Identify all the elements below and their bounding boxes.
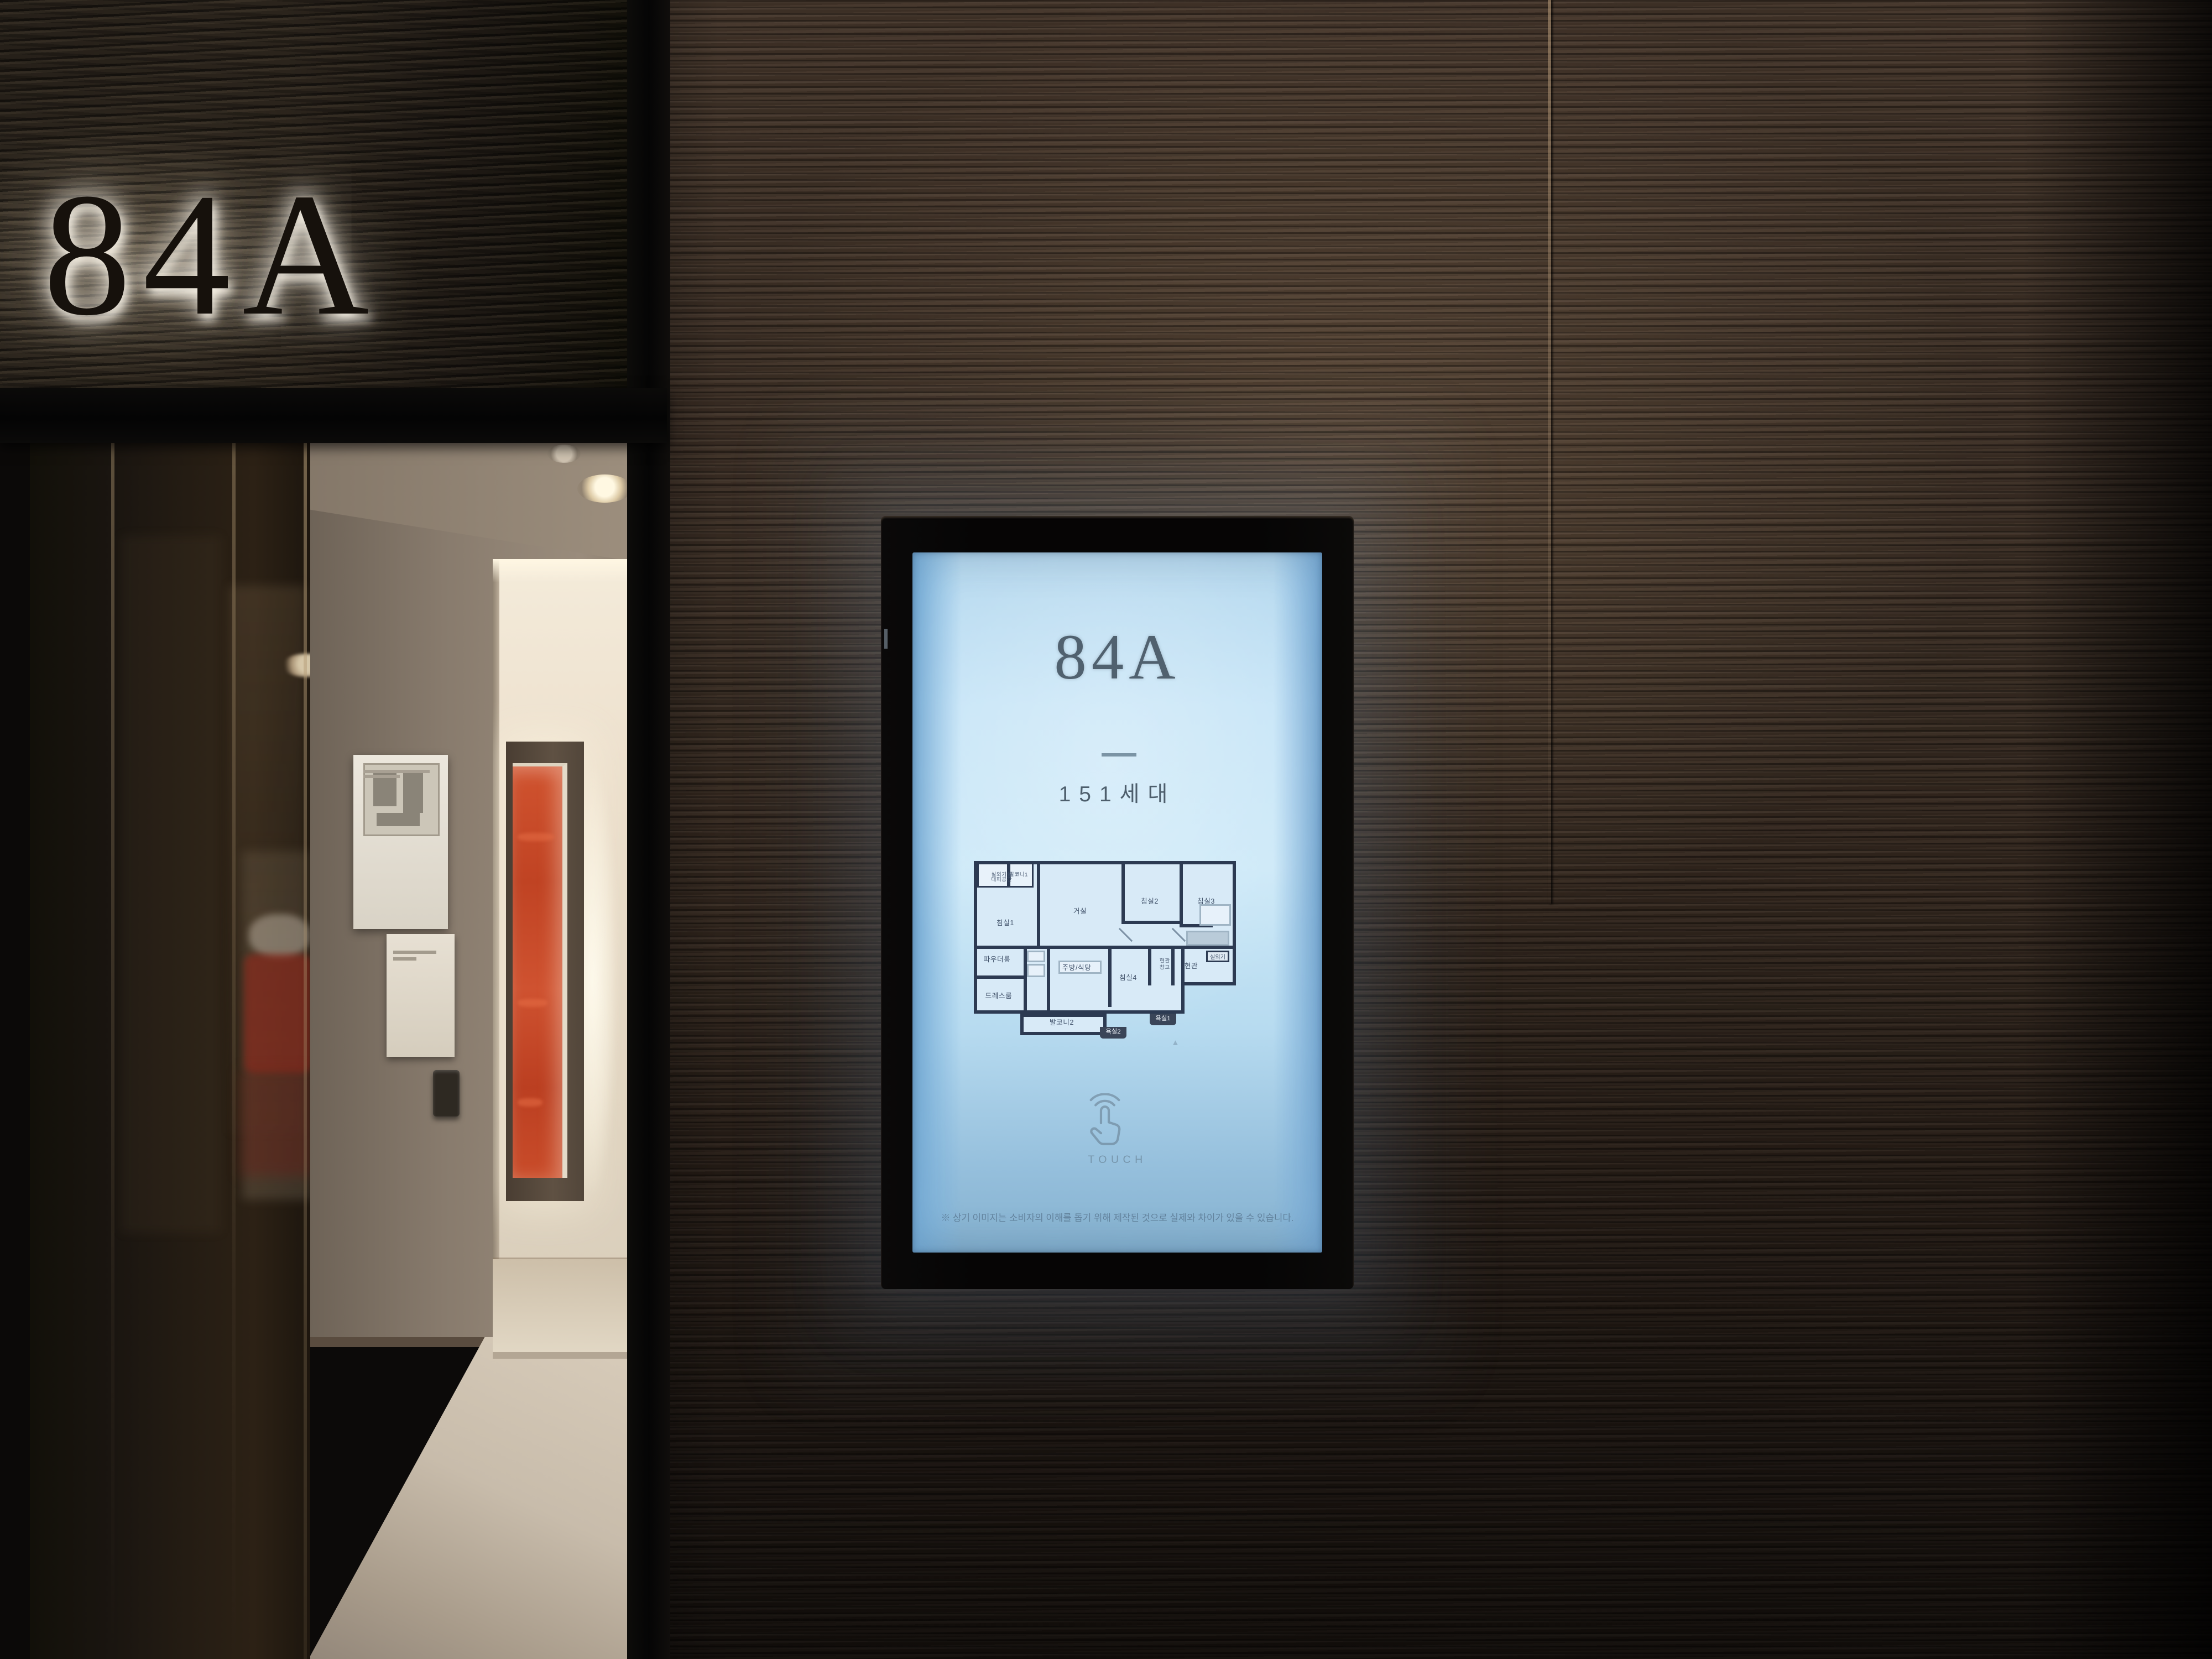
room-label: 침실3 xyxy=(1197,899,1215,906)
doorway-header-beam xyxy=(0,388,667,443)
room-label: 침실1 xyxy=(997,920,1014,928)
mirror-reflected-red-bed xyxy=(244,954,310,1073)
room-label: 드레스룸 xyxy=(985,993,1013,1001)
floor-plan[interactable]: 실외기실 대피공간 발코니1 침실1 거실 침실2 침실3 파우더룸 드레스룸 … xyxy=(974,858,1239,1040)
mirror-panel-seam xyxy=(111,441,114,1659)
inner-room-opening xyxy=(493,559,629,1355)
info-sheet-small xyxy=(387,934,455,1057)
wall-panel-right xyxy=(624,0,2212,1659)
bath2-tag: 욕실2 xyxy=(1100,1027,1126,1039)
mirror-reflected-red-bed xyxy=(241,1070,310,1176)
info-sheet-floorplan-thumbnail xyxy=(363,763,440,836)
household-count: 151세대 xyxy=(912,776,1322,808)
bath1-tag: 욕실1 xyxy=(1150,1014,1176,1025)
mirror-panel-seam xyxy=(232,441,236,1659)
inner-room-floor xyxy=(493,1259,629,1355)
disclaimer-text: ※ 상기 이미지는 소비자의 이해를 돕기 위해 제작된 것으로 실제와 차이가… xyxy=(932,1214,1302,1225)
outdoor-unit-tag: 실외기 xyxy=(1206,951,1229,962)
doorway-opening xyxy=(0,441,629,1659)
mirror-reflection xyxy=(121,536,221,1233)
wall-panel-seam xyxy=(1548,0,1551,904)
unit-sign: 84A xyxy=(43,139,425,372)
light-switch[interactable] xyxy=(433,1070,460,1117)
mirror-panel-seam xyxy=(304,441,307,1659)
digital-signage-kiosk: 84A 151세대 xyxy=(881,516,1354,1289)
mirrored-wardrobe xyxy=(30,441,310,1659)
entry-header-wall: 84A xyxy=(0,0,634,388)
unit-type-title: 84A xyxy=(912,625,1322,690)
divider-line xyxy=(1101,753,1136,757)
artwork-panel xyxy=(506,742,584,1201)
artwork-orange-canvas xyxy=(513,763,567,1178)
touch-hand-icon[interactable] xyxy=(1080,1093,1130,1150)
smoke-detector xyxy=(547,445,581,463)
room-label: 침실4 xyxy=(1119,975,1137,983)
north-arrow-icon: ▲ xyxy=(1160,1040,1183,1063)
bezel-reflection xyxy=(884,629,888,649)
room-label: 현관 xyxy=(1185,963,1198,971)
photo-scene: 84A xyxy=(0,0,2212,1659)
door-threshold xyxy=(493,1352,629,1359)
mirror-reflected-pillow xyxy=(249,914,310,957)
room-label: 거실 xyxy=(1073,909,1087,916)
entry-floor xyxy=(309,1337,629,1659)
kiosk-touchscreen[interactable]: 84A 151세대 xyxy=(912,552,1322,1253)
room-label: 발코니2 xyxy=(1050,1020,1074,1027)
room-label: 주방/식당 xyxy=(1062,965,1092,973)
entry-left-wall xyxy=(0,441,30,1659)
room-label: 침실2 xyxy=(1141,899,1159,906)
doorway-frame xyxy=(627,0,670,1659)
room-label: 파우더룸 xyxy=(984,957,1011,964)
room-label: 발코니1 xyxy=(1009,872,1028,878)
info-sheet-large xyxy=(353,755,448,929)
touch-label: TOUCH xyxy=(912,1155,1322,1166)
cove-light xyxy=(493,559,629,582)
downlight xyxy=(577,474,629,503)
door-jamb xyxy=(493,559,499,1355)
